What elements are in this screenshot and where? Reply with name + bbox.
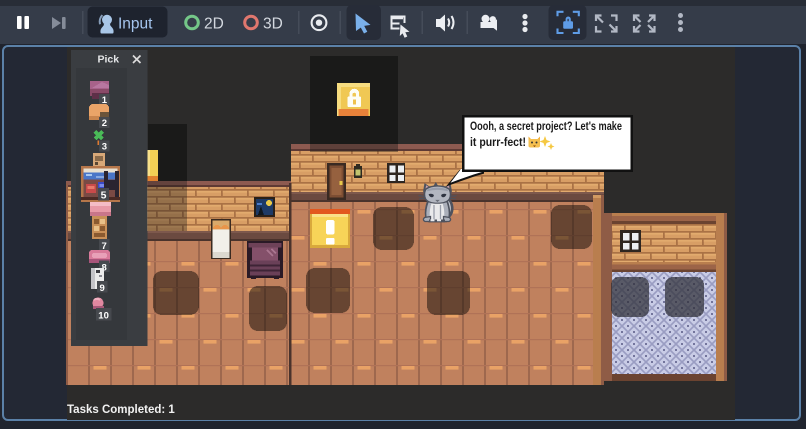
svg-text:9: 9 — [100, 283, 105, 294]
svg-text:5: 5 — [101, 190, 107, 202]
svg-text:Tasks Completed: 1: Tasks Completed: 1 — [67, 404, 175, 416]
svg-text:it purr-fect!: it purr-fect! — [470, 137, 526, 149]
svg-text:10: 10 — [98, 311, 109, 322]
svg-text:Pick: Pick — [98, 54, 120, 66]
svg-text:3: 3 — [102, 142, 107, 153]
svg-text:Oooh, a secret project? Let's: Oooh, a secret project? Let's make — [470, 121, 622, 133]
svg-text:2: 2 — [102, 118, 107, 129]
